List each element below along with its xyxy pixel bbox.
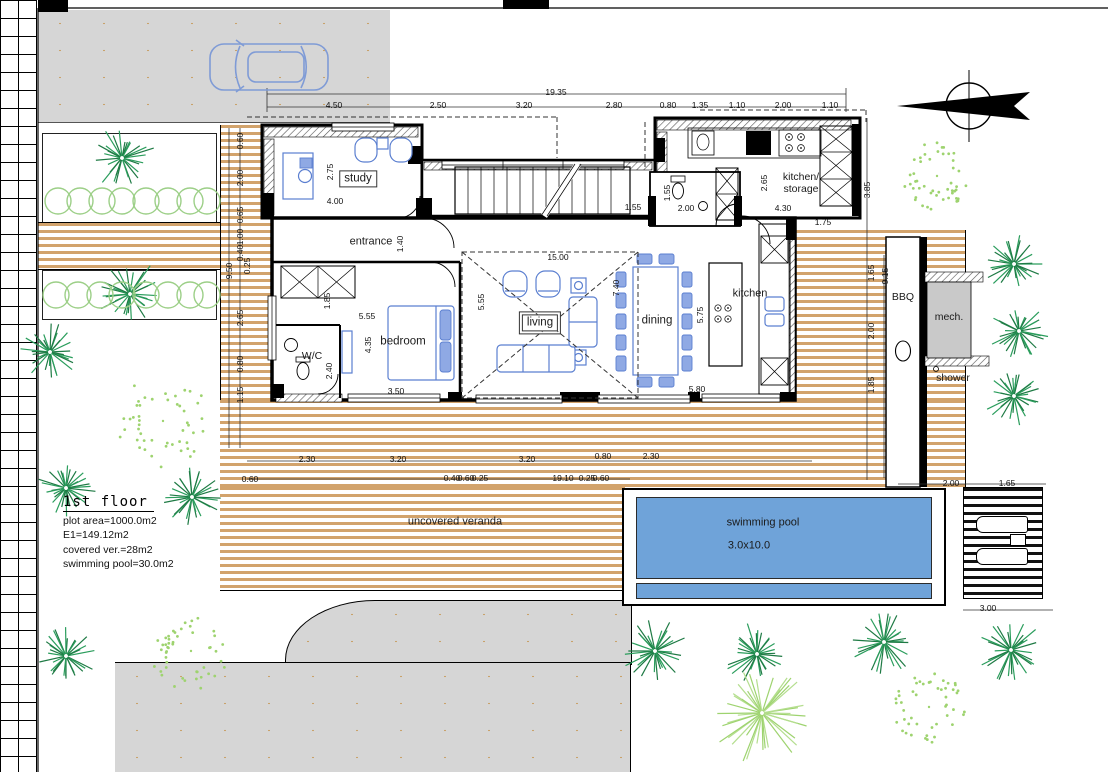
dimension-label: 1.65: [999, 478, 1016, 488]
dimension-label: 3.20: [390, 454, 407, 464]
dimension-label: 2.00: [235, 170, 245, 187]
e1-area-note: E1=149.12m2: [63, 529, 174, 541]
dimension-label: 2.75: [325, 164, 335, 181]
dimension-label: 1.15: [235, 387, 245, 404]
floor-plan-canvas: studyentrancebedroomW/Clivingdiningkitch…: [0, 0, 1110, 772]
dimension-label: 0.60: [235, 133, 245, 150]
floor-title: 1st floor: [63, 494, 154, 512]
dimension-label: 2.00: [943, 478, 960, 488]
covered-veranda-note: covered ver.=28m2: [63, 544, 174, 556]
dimension-label: 3.20: [519, 454, 536, 464]
dimension-label: 5.80: [689, 384, 706, 394]
dimension-label: 15.00: [547, 252, 568, 262]
dimension-label: 3.20: [516, 100, 533, 110]
dimension-label: 0.65: [235, 207, 245, 224]
dimension-label-layer: 19.354.502.503.202.800.801.351.102.001.1…: [0, 0, 1110, 772]
dimension-label: 2.30: [299, 454, 316, 464]
dimension-label: 0.80: [660, 100, 677, 110]
dimension-label: 5.55: [476, 294, 486, 311]
dimension-label: 0.80: [235, 356, 245, 373]
dimension-label: 2.00: [866, 323, 876, 340]
dimension-label: 2.65: [235, 310, 245, 327]
dimension-label: 2.30: [643, 451, 660, 461]
dimension-label: 9.15: [880, 268, 890, 285]
plot-area-note: plot area=1000.0m2: [63, 515, 174, 527]
dimension-label: 1.40: [395, 236, 405, 253]
dimension-label: 5.55: [359, 311, 376, 321]
dimension-label: 1.65: [866, 265, 876, 282]
title-block: 1st floor plot area=1000.0m2 E1=149.12m2…: [63, 494, 174, 570]
dimension-label: 3.85: [862, 182, 872, 199]
dimension-label: 3.00: [980, 603, 997, 613]
dimension-label: 2.50: [430, 100, 447, 110]
dimension-label: 2.65: [759, 175, 769, 192]
dimension-label: 0.25: [472, 473, 489, 483]
dimension-label: 9.50: [224, 263, 234, 280]
dimension-label: 1.55: [662, 185, 672, 202]
dimension-label: 1.35: [692, 100, 709, 110]
dimension-label: 4.30: [775, 203, 792, 213]
dimension-label: 1.10: [729, 100, 746, 110]
dimension-label: 2.00: [775, 100, 792, 110]
dimension-label: 5.75: [695, 307, 705, 324]
dimension-label: 1.85: [866, 377, 876, 394]
dimension-label: 19.10: [552, 473, 573, 483]
pool-area-note: swimming pool=30.0m2: [63, 558, 174, 570]
dimension-label: 7.40: [611, 280, 621, 297]
dimension-label: 19.35: [545, 87, 566, 97]
dimension-label: 1.85: [322, 293, 332, 310]
dimension-label: 0.25: [242, 258, 252, 275]
dimension-label: 4.00: [327, 196, 344, 206]
dimension-label: 0.60: [242, 474, 259, 484]
dimension-label: 0.80: [595, 451, 612, 461]
dimension-label: 0.60: [593, 473, 610, 483]
dimension-label: 1.55: [625, 202, 642, 212]
dimension-label: 1.75: [815, 217, 832, 227]
dimension-label: 3.50: [388, 386, 405, 396]
dimension-label: 4.35: [363, 337, 373, 354]
dimension-label: 4.50: [326, 100, 343, 110]
dimension-label: 2.80: [606, 100, 623, 110]
dimension-label: 2.00: [678, 203, 695, 213]
dimension-label: 1.00: [235, 229, 245, 246]
dimension-label: 2.40: [324, 363, 334, 380]
dimension-label: 1.10: [822, 100, 839, 110]
